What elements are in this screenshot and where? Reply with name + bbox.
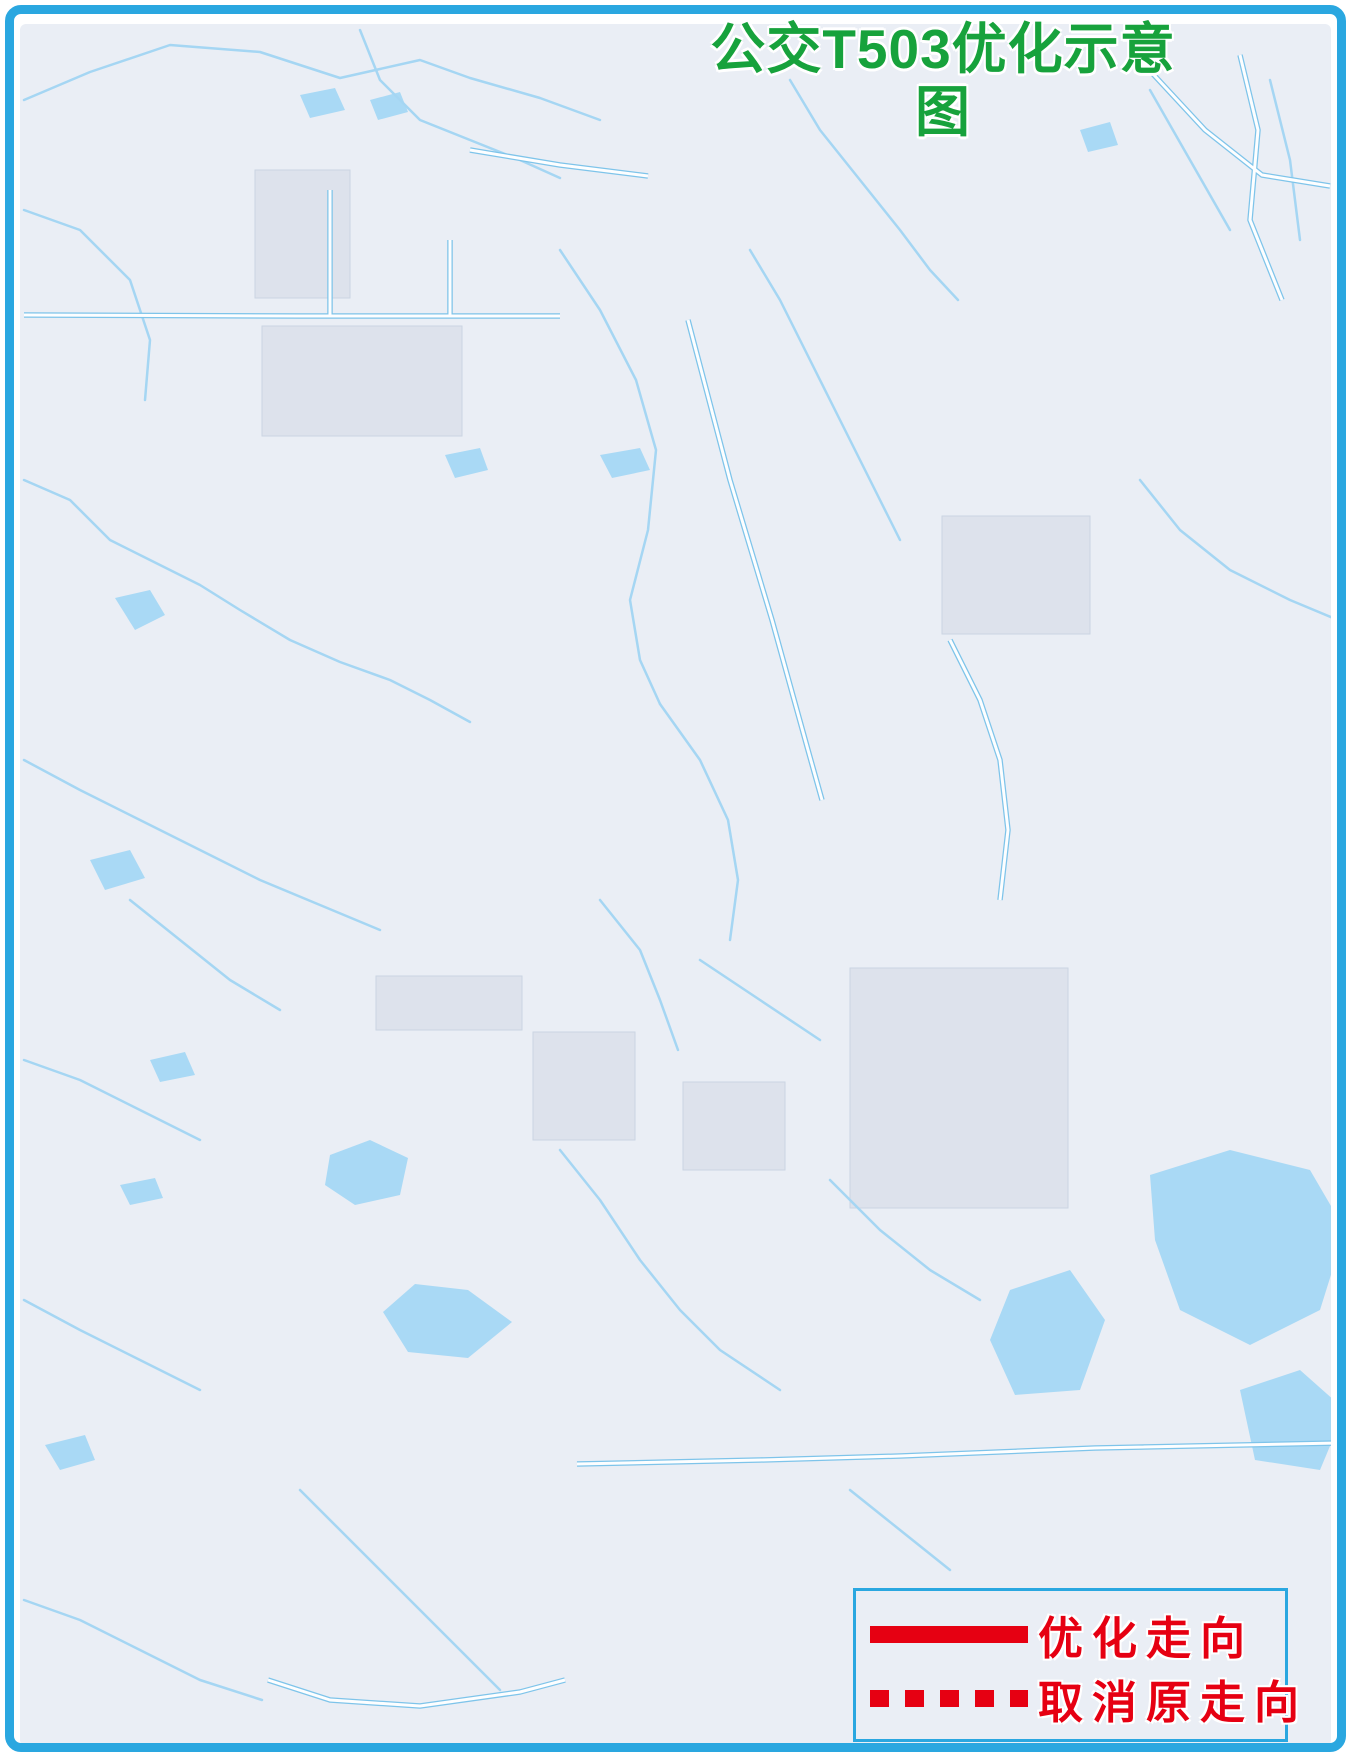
legend-row-optimized: 优化走向	[870, 1609, 1254, 1659]
legend-cancelled-label: 取消原走向	[1038, 1666, 1308, 1731]
city-block	[533, 1032, 635, 1140]
city-block	[255, 170, 350, 298]
legend-optimized-label: 优化走向	[1038, 1602, 1254, 1667]
city-block	[262, 326, 462, 436]
route-map-canvas	[0, 0, 1351, 1757]
map-page: 公交T503优化示意图 优化走向 取消原走向	[0, 0, 1351, 1757]
map-layers	[20, 24, 1345, 1746]
legend-box: 优化走向 取消原走向	[853, 1588, 1288, 1742]
map-title: 公交T503优化示意图	[688, 18, 1198, 145]
legend-row-cancelled: 取消原走向	[870, 1673, 1308, 1723]
solid-route-line-sample	[870, 1626, 1028, 1643]
city-block	[850, 968, 1068, 1208]
city-block	[376, 976, 522, 1030]
city-block	[942, 516, 1090, 634]
dashed-route-line-sample	[870, 1690, 1028, 1707]
road-line	[24, 315, 560, 316]
city-block	[683, 1082, 785, 1170]
